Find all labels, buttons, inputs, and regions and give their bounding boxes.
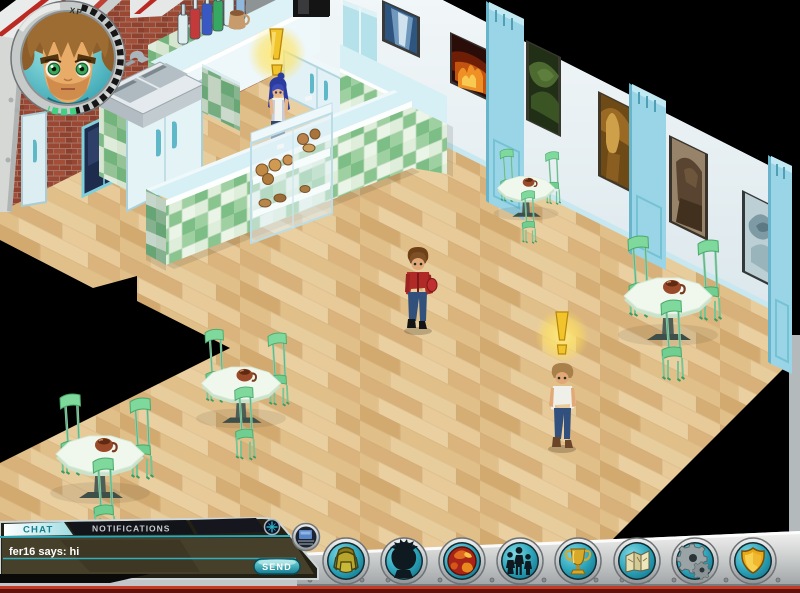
svg-text:NOTIFICATIONS: NOTIFICATIONS [92, 524, 170, 534]
svg-text:fer16 says: hi: fer16 says: hi [9, 546, 79, 558]
svg-text:CHAT: CHAT [23, 525, 53, 536]
svg-text:SEND: SEND [262, 562, 292, 572]
